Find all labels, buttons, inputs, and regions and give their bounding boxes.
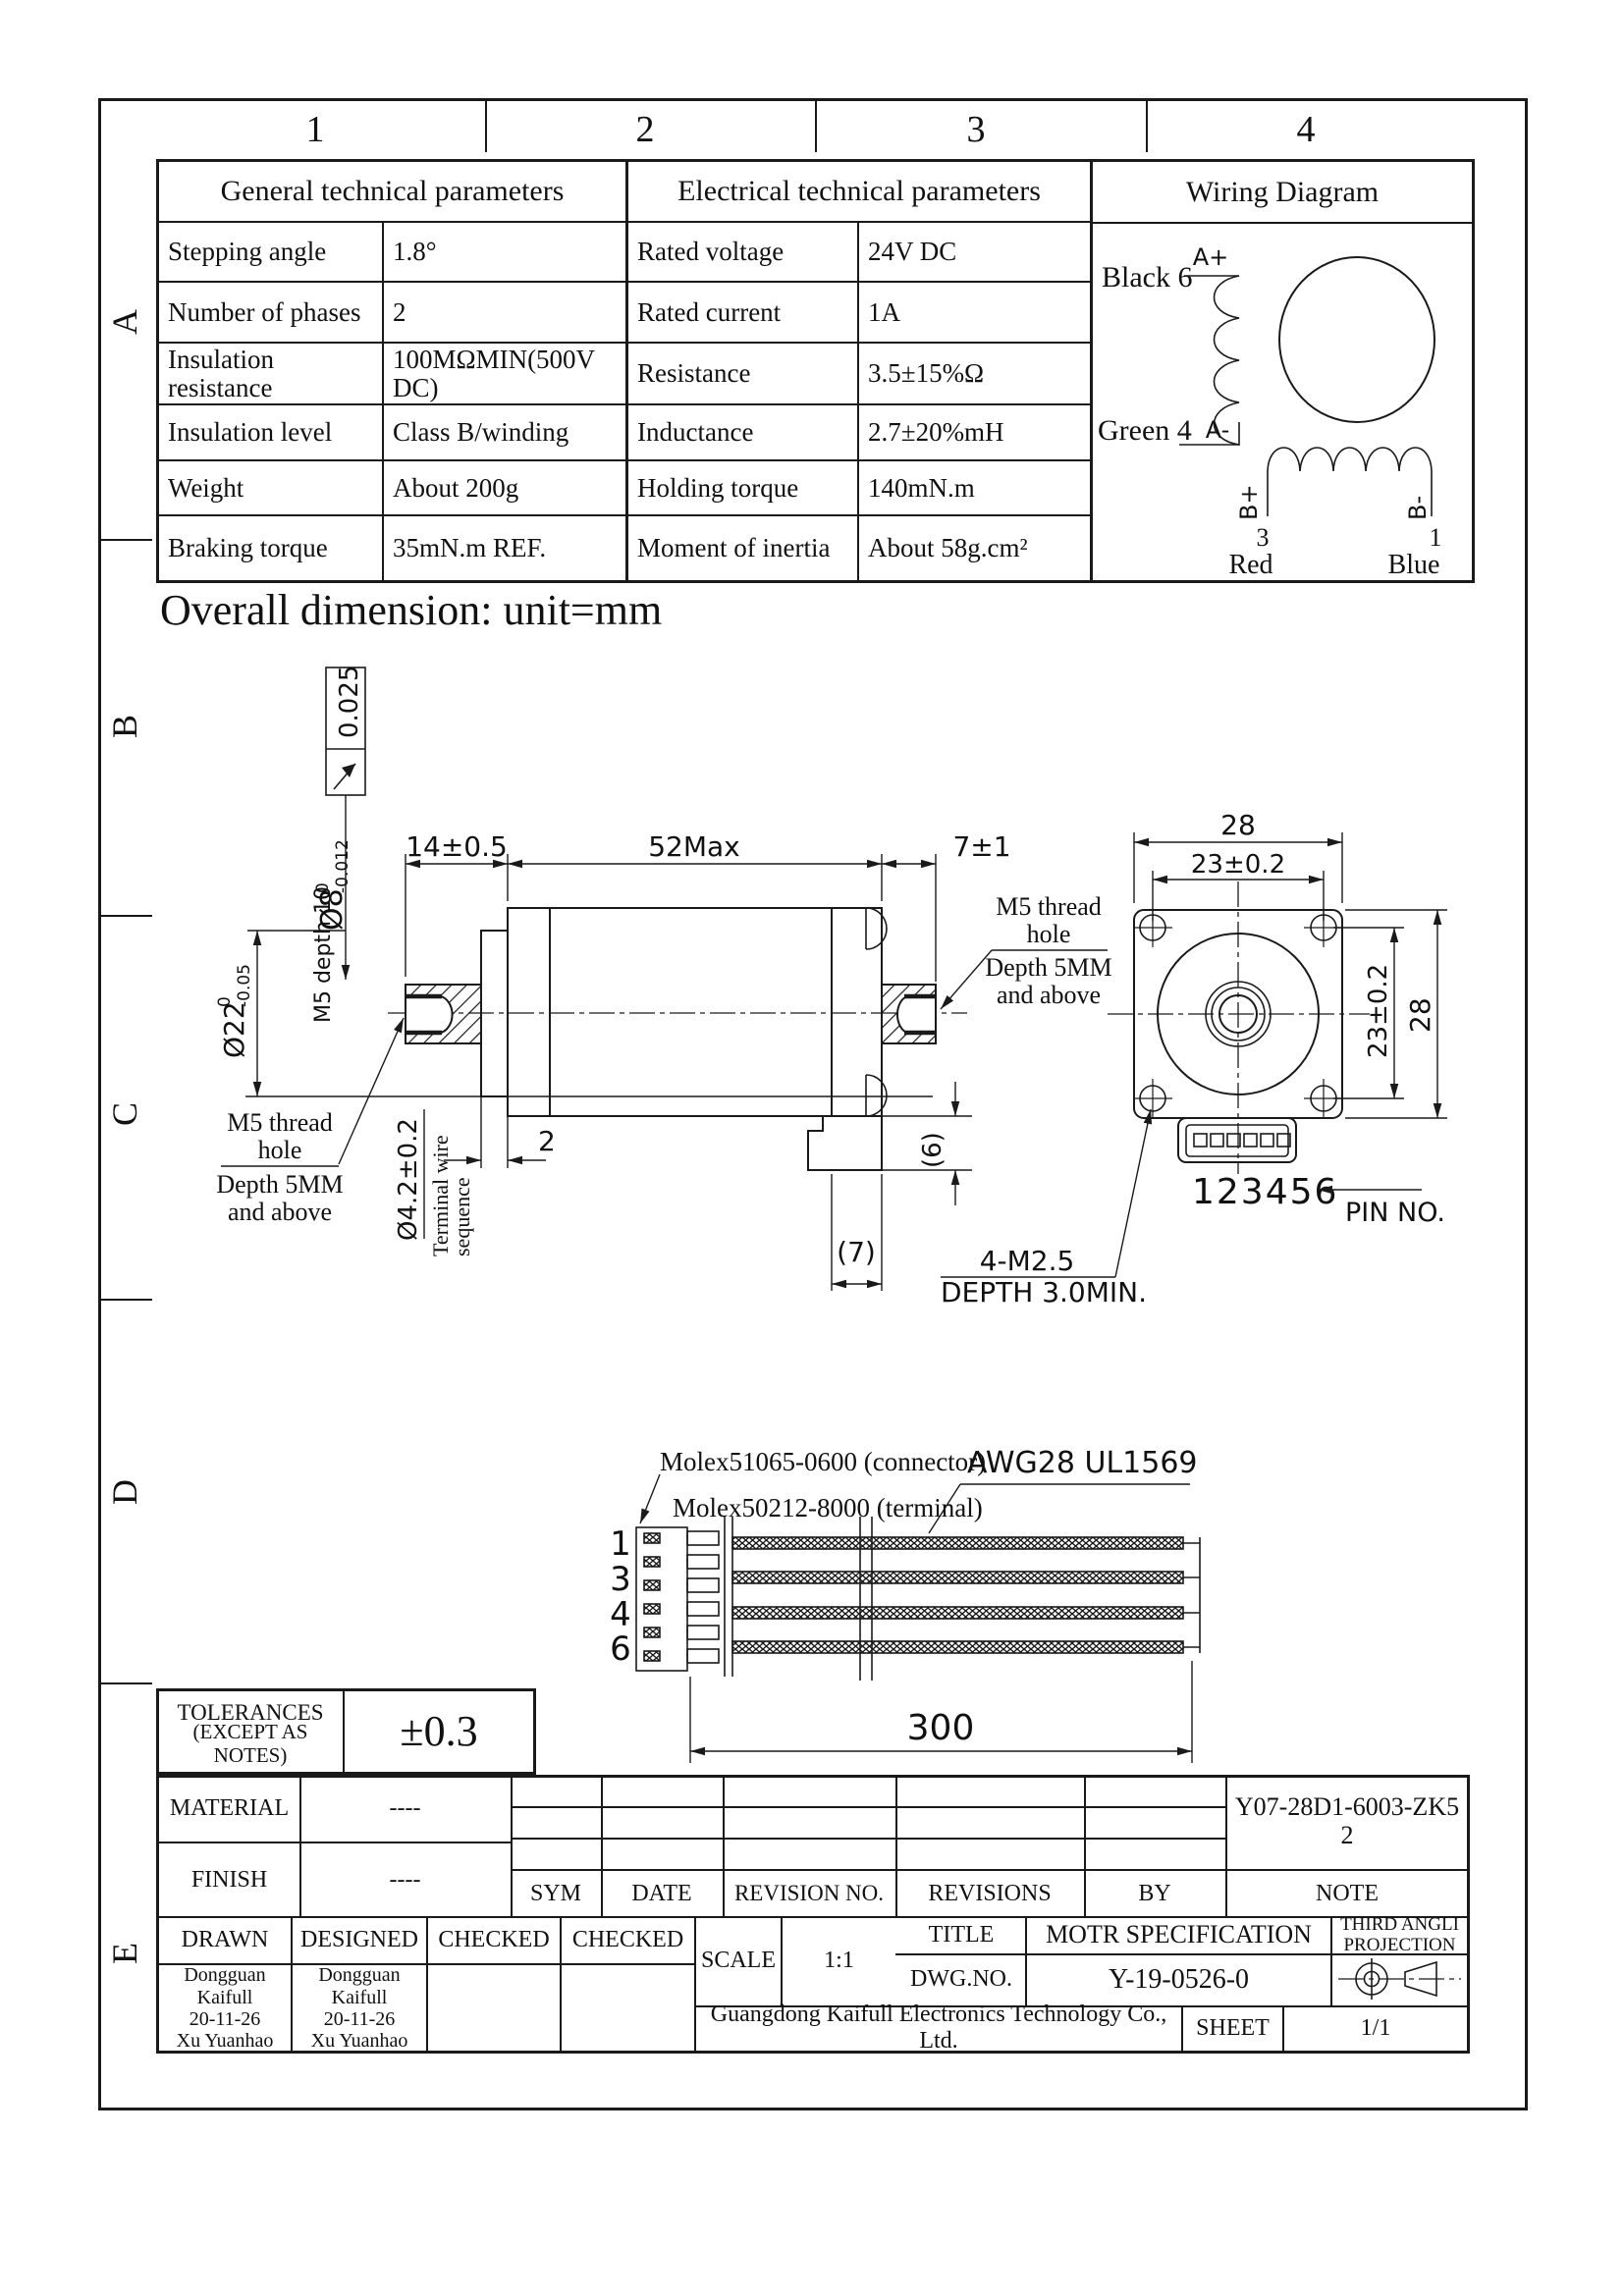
- zone-col-4: 4: [1281, 106, 1330, 153]
- param-label: Weight: [159, 461, 384, 516]
- param-value: About 200g: [384, 461, 625, 516]
- param-value: 3.5±15%Ω: [859, 344, 1090, 405]
- zone-row-a: A: [101, 297, 148, 347]
- zone-tick: [1146, 98, 1148, 152]
- sheet-value: 1/1: [1284, 2005, 1467, 2051]
- note-header: NOTE: [1227, 1871, 1467, 1916]
- divider: [343, 1688, 345, 1775]
- material-label: MATERIAL: [159, 1775, 299, 1842]
- date-header: DATE: [603, 1871, 721, 1916]
- param-value: 2.7±20%mH: [859, 405, 1090, 461]
- param-value: About 58g.cm²: [859, 516, 1090, 580]
- general-parameters-table: General technical parameters Stepping an…: [156, 159, 628, 583]
- param-label: Stepping angle: [159, 223, 384, 283]
- zone-tick: [98, 1299, 152, 1301]
- param-label: Inductance: [628, 405, 859, 461]
- title-value: MOTR SPECIFICATION: [1027, 1916, 1330, 1953]
- param-label: Moment of inertia: [628, 516, 859, 580]
- scale-value: 1:1: [783, 1916, 895, 2005]
- param-value: 100MΩMIN(500V DC): [384, 344, 625, 405]
- param-label: Braking torque: [159, 516, 384, 580]
- param-value: 24V DC: [859, 223, 1090, 283]
- third-angle-projection-icon: [1332, 1953, 1467, 2005]
- param-value: 2: [384, 283, 625, 344]
- zone-row-c: C: [101, 1090, 148, 1139]
- wiring-diagram-panel: Wiring Diagram: [1093, 159, 1475, 583]
- param-label: Holding torque: [628, 461, 859, 516]
- zone-tick: [98, 539, 152, 541]
- sym-header: SYM: [513, 1871, 599, 1916]
- param-label: Insulation level: [159, 405, 384, 461]
- by-header: BY: [1086, 1871, 1223, 1916]
- revisions-header: REVISIONS: [897, 1871, 1082, 1916]
- zone-col-2: 2: [621, 106, 670, 153]
- zone-row-e: E: [101, 1929, 148, 1978]
- grid-line: [511, 1838, 1225, 1840]
- param-label: Rated voltage: [628, 223, 859, 283]
- param-label: Resistance: [628, 344, 859, 405]
- designed-person: Dongguan Kaifull 20-11-26 Xu Yuanhao: [293, 1965, 426, 2052]
- dwg-no-label: DWG.NO.: [897, 1953, 1025, 2005]
- param-value: 140mN.m: [859, 461, 1090, 516]
- material-value: ----: [301, 1775, 509, 1842]
- designed-header: DESIGNED: [293, 1916, 426, 1963]
- general-table-title: General technical parameters: [159, 162, 625, 223]
- zone-row-b: B: [101, 702, 148, 751]
- tolerance-value: ±0.3: [347, 1690, 531, 1773]
- param-value: 1.8°: [384, 223, 625, 283]
- grid-line: [511, 1806, 1225, 1808]
- param-value: 35mN.m REF.: [384, 516, 625, 580]
- zone-tick: [815, 98, 817, 152]
- electrical-table-title: Electrical technical parameters: [628, 162, 1090, 223]
- section-title: Overall dimension: unit=mm: [160, 585, 769, 636]
- zone-tick: [98, 1682, 152, 1684]
- finish-value: ----: [301, 1843, 509, 1916]
- param-label: Insulation resistance: [159, 344, 384, 405]
- revision-no-header: REVISION NO.: [725, 1871, 893, 1916]
- drawing-sheet: 1 2 3 4 A B C D E General technical para…: [0, 0, 1624, 2296]
- param-label: Rated current: [628, 283, 859, 344]
- zone-col-3: 3: [951, 106, 1001, 153]
- drawn-header: DRAWN: [159, 1916, 291, 1963]
- projection-label: THIRD ANGLI PROJECTION: [1332, 1916, 1467, 1953]
- scale-label: SCALE: [696, 1916, 781, 2005]
- tolerances-label-2: (EXCEPT AS NOTES): [158, 1728, 343, 1761]
- zone-tick: [98, 915, 152, 917]
- company-name: Guangdong Kaifull Electronics Technology…: [696, 2005, 1181, 2051]
- zone-tick: [485, 98, 487, 152]
- dwg-no-value: Y-19-0526-0: [1027, 1953, 1330, 2005]
- part-number: Y07-28D1-6003-ZK5 2: [1227, 1775, 1467, 1867]
- checked-header-2: CHECKED: [562, 1916, 694, 1963]
- param-value: Class B/winding: [384, 405, 625, 461]
- electrical-parameters-table: Electrical technical parameters Rated vo…: [628, 159, 1093, 583]
- sheet-label: SHEET: [1183, 2005, 1282, 2051]
- title-label: TITLE: [897, 1916, 1025, 1953]
- param-label: Number of phases: [159, 283, 384, 344]
- finish-label: FINISH: [159, 1843, 299, 1916]
- wiring-diagram-title: Wiring Diagram: [1093, 162, 1472, 224]
- zone-row-d: D: [101, 1468, 148, 1517]
- checked-header: CHECKED: [428, 1916, 560, 1963]
- drawn-person: Dongguan Kaifull 20-11-26 Xu Yuanhao: [159, 1965, 291, 2052]
- zone-col-1: 1: [291, 106, 340, 153]
- param-value: 1A: [859, 283, 1090, 344]
